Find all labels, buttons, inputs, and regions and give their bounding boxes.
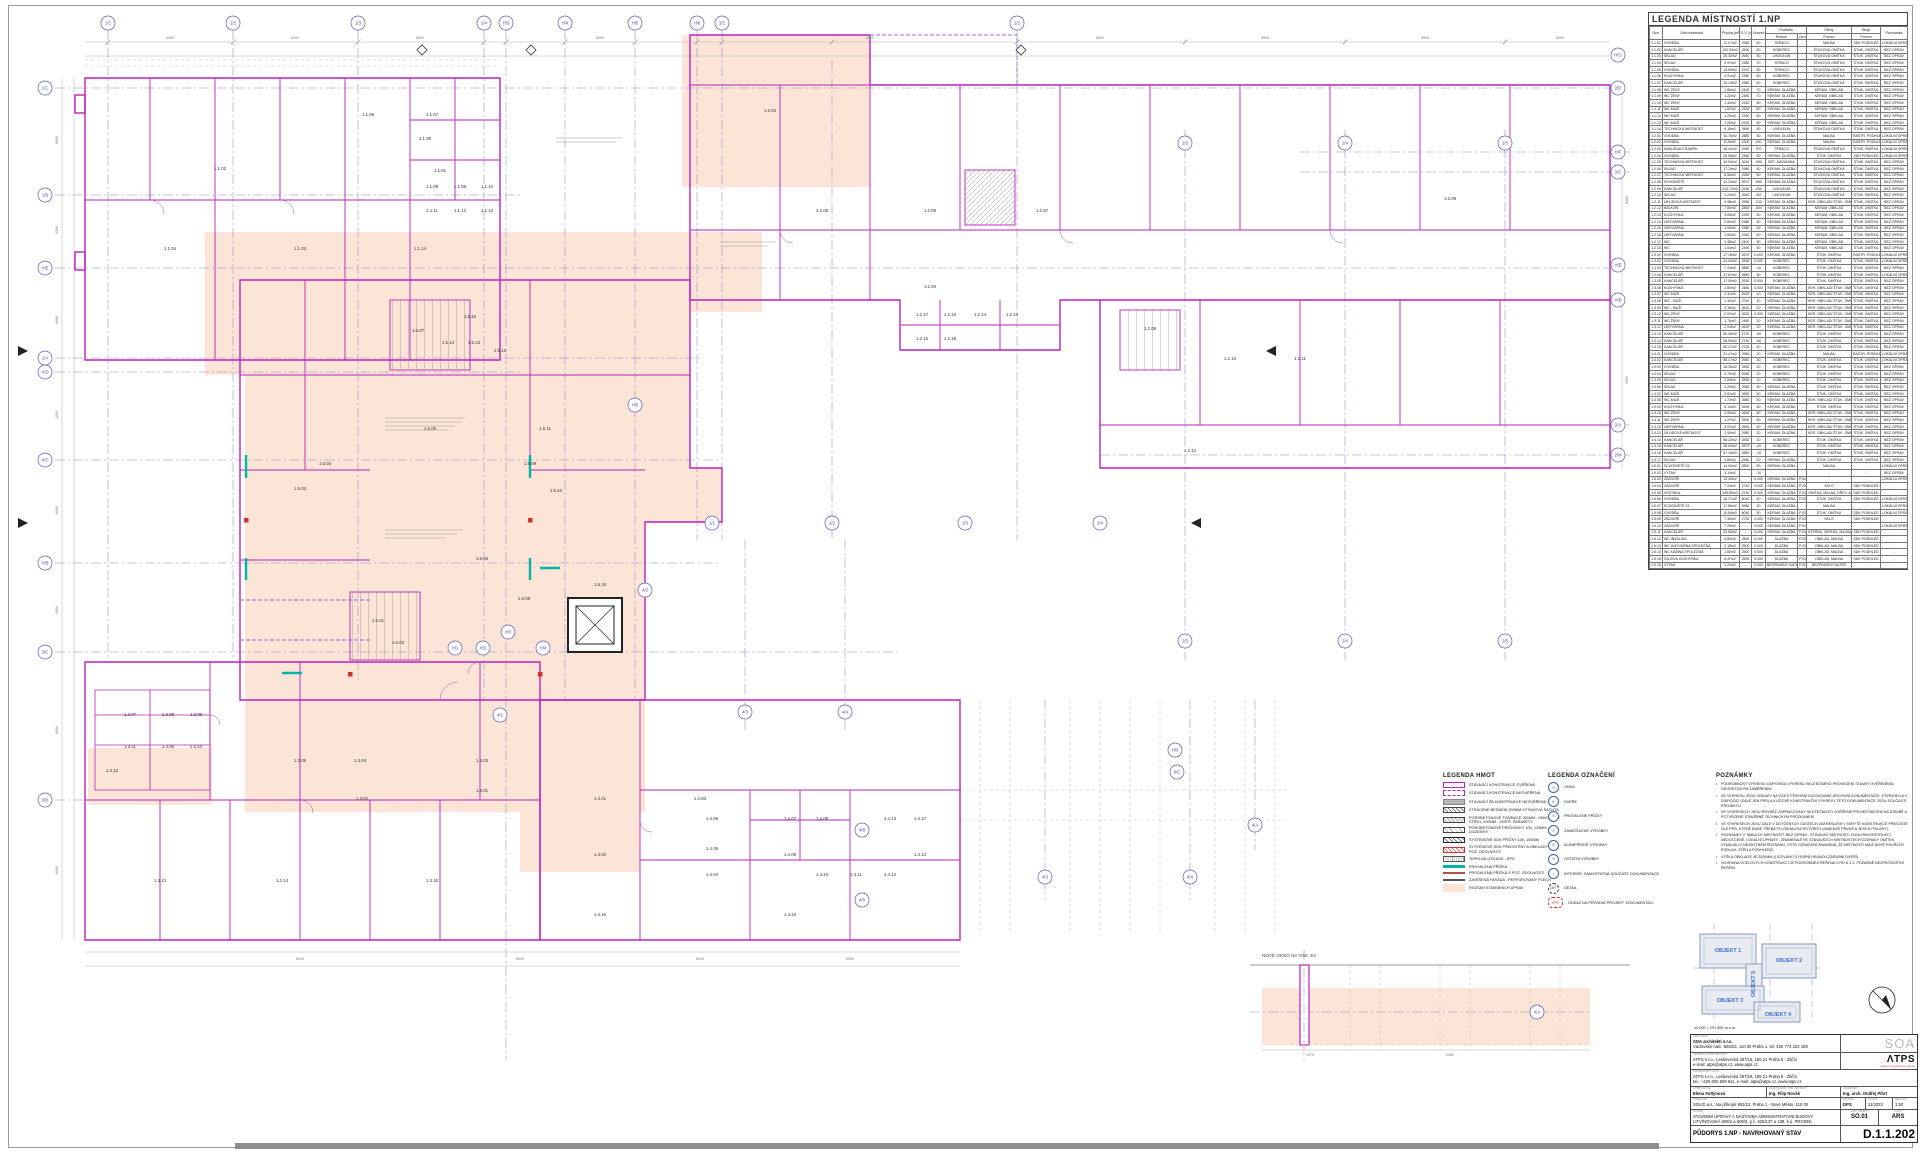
drawing-number: D.1.1.202: [1843, 1127, 1915, 1141]
svg-text:1.1.06: 1.1.06: [362, 112, 375, 117]
svg-text:1/A: 1/A: [42, 356, 48, 361]
legend-item: STÁVAJÍCÍ KONSTRUKCE OVĚŘENÁ: [1443, 782, 1561, 788]
title-block: ARCHITEKT SOA architekti s.r.o. Václavsk…: [1690, 1034, 1918, 1143]
table-row: 1.1.06KUCHYŇKA4.91m2238060KOBEREC-ŠTUKOV…: [1650, 73, 1908, 80]
svg-text:1.4.17: 1.4.17: [914, 816, 927, 821]
svg-text:6000: 6000: [1096, 36, 1104, 40]
svg-text:1.5.05: 1.5.05: [424, 426, 437, 431]
atps-logo: ΛTPSatelier projektovani staveb: [1843, 1054, 1915, 1068]
table-row: 1.1.05CHODBA13.59m2237060TERACO-ŠTUKOVÁ …: [1650, 66, 1908, 73]
legend-item: ZTRACENÉ BEDNĚNÍ 200MM VÝTAHOVÁ ŠACHTA: [1443, 807, 1561, 813]
svg-text:1.4.15: 1.4.15: [784, 912, 797, 917]
svg-text:1.5.01: 1.5.01: [372, 618, 385, 623]
svg-text:4500: 4500: [1625, 376, 1629, 384]
table-row: 1.3.07WC MUŽI4.31m2262010KERAM. DLAŽBA-K…: [1650, 291, 1908, 298]
svg-text:1.4.05: 1.4.05: [706, 846, 719, 851]
svg-text:6000: 6000: [166, 36, 174, 40]
svg-text:4/A: 4/A: [1534, 1010, 1540, 1015]
svg-text:1.2.18: 1.2.18: [944, 336, 957, 341]
table-row: 1.3.12UMÝVÁRNA2.04m2262020KERAM. DLAŽBA-…: [1650, 324, 1908, 331]
svg-text:1.4.03: 1.4.03: [694, 796, 707, 801]
drawing-title: PŮDORYS 1.NP - NAVRHOVANÝ STAV: [1693, 1131, 1801, 1137]
svg-text:1.2.11: 1.2.11: [1294, 356, 1306, 361]
table-row: 1.4.11WC ŽENY1.27m2250050KERAM. DLAŽBA-K…: [1650, 417, 1908, 424]
table-row: 1.5.09ZÁDVEŘÍ7.35m227300.000KERAM. DLAŽB…: [1650, 516, 1908, 523]
table-row: 1.3.03TECHNICKÁ MÍSTNOST7.24m22880-10KOB…: [1650, 265, 1908, 272]
table-row: 1.5.03ZÁDVEŘÍ13.49m2-0.000KERAM. DLAŽBAP…: [1650, 476, 1908, 483]
note-item: VE VÝKRESU JSOU ODKAZY NA ČÁSTI PŮVODNÍ …: [1716, 794, 1912, 809]
note-item: POZNÁMKY V TABULCE MÍSTNOSTÍ: BEZ OPRAV …: [1716, 833, 1912, 853]
svg-text:1.4.10: 1.4.10: [816, 872, 829, 877]
table-row: 1.5.01SCHODIŠTĚ S214.93m2280090KERAM. DL…: [1650, 463, 1908, 470]
svg-text:1.2.07: 1.2.07: [1036, 208, 1049, 213]
svg-text:8150: 8150: [1625, 196, 1629, 204]
svg-text:OBJEKT 3: OBJEKT 3: [1717, 998, 1743, 1004]
svg-text:6000: 6000: [55, 726, 59, 734]
table-row: 1.2.08SCHODIŠTĚ12.20m26570-550KERAM. DLA…: [1650, 179, 1908, 186]
svg-text:H/D: H/D: [41, 370, 48, 375]
north-arrow-icon: [1869, 987, 1895, 1013]
svg-text:1.1.04: 1.1.04: [164, 246, 177, 251]
architect2-name: Ing. arch. Ondřej Píhrt: [1843, 1091, 1887, 1096]
legend-item: ROZSAH STAVEBNÍCH ÚPRAV: [1443, 884, 1561, 892]
table-row: 1.1.01CHODBA11.17m2298050TERACO-MALBASDK…: [1650, 40, 1908, 47]
room-table-header: Ozn. Účel místnosti Plocha [m²] S.V. [mm…: [1650, 27, 1908, 40]
table-row: 1.5.10ZÁDVEŘÍ7.29m2-0.000KERAM. DLAŽBAP.…: [1650, 522, 1908, 529]
svg-text:1.2.08: 1.2.08: [1144, 326, 1157, 331]
svg-text:1.1.14: 1.1.14: [414, 246, 427, 251]
svg-text:1.1.07: 1.1.07: [426, 112, 439, 117]
legend-swatch: [1443, 827, 1465, 833]
table-row: 1.4.12UMÝVÁRNA3.07m2265050KERAM. DLAŽBA-…: [1650, 423, 1908, 430]
table-row: 1.2.09KANCELÁŘ214.72m22930-200LINOLEUM-Š…: [1650, 185, 1908, 192]
svg-text:1.1.13: 1.1.13: [481, 208, 494, 213]
table-row: 1.2.01CHODBA14.76m2288050KERAM. DLAŽBA-M…: [1650, 132, 1908, 139]
svg-text:2/2: 2/2: [1014, 21, 1020, 26]
svg-text:1.2.09: 1.2.09: [1444, 196, 1457, 201]
svg-text:1.5.07: 1.5.07: [412, 328, 425, 333]
architect-name: SOA architekti s.r.o.: [1693, 1039, 1733, 1044]
svg-text:1.4.07: 1.4.07: [784, 816, 797, 821]
table-row: 1.4.04SKLAD4.70m2298030KOBEREC-ŠTUK. OMÍ…: [1650, 370, 1908, 377]
legend-swatch: [1443, 865, 1465, 868]
doc-part: ARS: [1892, 1114, 1905, 1120]
drawing-sheet: { "sheet": { "drawing_title": "PŮDORYS 1…: [0, 0, 1920, 1152]
notes-title: POZNÁMKY: [1716, 773, 1912, 779]
legend-symbol-item: VOSTATNÍ VÝROBKY: [1548, 854, 1660, 865]
table-row: 1.5.13WC UMÝVÁRNA SPOLEČNÁ2.15m225000.00…: [1650, 542, 1908, 549]
table-row: 1.5.02VÝTAH3.10m2--10----BEZ OPRAV: [1650, 470, 1908, 477]
floor-plan-drawing: 1/11/21/31/4H/3H/4H/5H/62/12/22/32/42/52…: [0, 0, 1655, 1152]
svg-text:2/1: 2/1: [709, 521, 715, 526]
table-row: 1.4.01CHODBA21.47m2298020KERAM. DLAŽBA-M…: [1650, 351, 1908, 358]
table-row: 1.4.13ÚKLIDOVÁ MÍSTNOST2.90m2298030KERAM…: [1650, 430, 1908, 437]
svg-text:1.2.06: 1.2.06: [924, 208, 937, 213]
svg-text:1.5.08: 1.5.08: [518, 596, 531, 601]
svg-text:H/E: H/E: [42, 266, 49, 271]
elevator-shaft: [568, 598, 622, 652]
symbol-circle-icon: O: [1548, 782, 1559, 793]
svg-text:1.3.12: 1.3.12: [106, 768, 119, 773]
svg-text:2/D: 2/D: [1615, 86, 1622, 91]
table-row: 1.5.16VÝTAH4.20m2-0.000BEZPRAŠNÝ NÁTĚRP.…: [1650, 562, 1908, 569]
legend-item: SYSTÉMOVÉ SDK PŘÍČKY 100, 150MM: [1443, 837, 1561, 843]
svg-text:1.3.09: 1.3.09: [190, 712, 203, 717]
svg-text:1.4.11: 1.4.11: [850, 872, 862, 877]
table-row: 1.3.08WC - MUŽI1.32m2274010KERAM. DLAŽBA…: [1650, 298, 1908, 305]
stage-value: DPS: [1843, 1102, 1852, 1107]
svg-text:2460: 2460: [1446, 1053, 1454, 1057]
table-row: 1.4.06SKLAD3.29m2298030KERAM. DLAŽBA-ŠTU…: [1650, 384, 1908, 391]
svg-text:1.3.08: 1.3.08: [162, 712, 175, 717]
table-row: 1.1.03SKLAD25.32m2294050LINOLEUM-ŠTUKOVÁ…: [1650, 53, 1908, 60]
symbol-circle-icon: K: [1548, 840, 1559, 851]
table-row: 1.5.07SCHODIŠTĚ S117.66m2596020KERAM. DL…: [1650, 503, 1908, 510]
svg-text:H/2: H/2: [480, 646, 487, 651]
table-row: 1.1.08WC ŽENY1.86m2240070KERAM. DLAŽBA-K…: [1650, 86, 1908, 93]
svg-text:6000: 6000: [696, 957, 704, 961]
responsible-designer: Ing. Filip Novák: [1769, 1091, 1800, 1096]
table-row: 1.4.17SKLAD1.80m2298020KERAM. DLAŽBA-ŠTU…: [1650, 456, 1908, 463]
table-row: 1.3.05KANCELÁŘ17.00m225300.000KOBEREC-ŠT…: [1650, 278, 1908, 285]
table-row: 1.4.15KANCELÁŘ28.04m22870-20KOBEREC-ŠTUK…: [1650, 443, 1908, 450]
renovation-scope-areas: [88, 35, 1590, 1045]
svg-text:1.1.11: 1.1.11: [426, 208, 438, 213]
svg-text:4/3: 4/3: [742, 710, 748, 715]
legend-item: POROBETONOVÉ TVÁRNICE 250MM - OBVODOVÉ S…: [1443, 816, 1561, 824]
table-row: 1.5.11KANCELÁŘ24.55m2-0.000KERAM. DLAŽBA…: [1650, 529, 1908, 536]
svg-text:2/4: 2/4: [1097, 521, 1103, 526]
svg-text:1.3.07: 1.3.07: [124, 712, 137, 717]
table-row: 1.2.05TECHNICKÁ MÍSTNOST19.00m23240-590B…: [1650, 159, 1908, 166]
svg-text:1.5.04: 1.5.04: [319, 461, 332, 466]
table-row: 1.1.14TECHNICKÁ MÍSTNOST6.18m2289050LINO…: [1650, 126, 1908, 133]
table-row: 1.2.15UMÝVÁRNA1.53m2238050KERAM. DLAŽBA-…: [1650, 225, 1908, 232]
svg-text:H/B: H/B: [42, 561, 49, 566]
table-row: 1.2.18WC1.04m2239060KERAM. DLAŽBA-KERAM.…: [1650, 245, 1908, 252]
architect-address: Václavské nám. 828/23, 110 00 Praha 1, t…: [1693, 1044, 1808, 1049]
svg-text:1/3: 1/3: [355, 21, 361, 26]
investor: SOLID a.s., Na příkopě 853/12, Praha 1 -…: [1693, 1102, 1808, 1107]
legend-item: STÁVAJÍCÍ KONSTRUKCE NEOVĚŘENÁ: [1443, 790, 1561, 796]
svg-text:1.3.03: 1.3.03: [476, 758, 489, 763]
svg-text:1.2.05: 1.2.05: [816, 208, 829, 213]
part-designer: ATPS s.r.o., Leskovecká 287/16, 155 21 P…: [1693, 1074, 1797, 1079]
table-row: 1.2.14UMÝVÁRNA2.80m2238050KERAM. DLAŽBA-…: [1650, 218, 1908, 225]
svg-text:1.2.17: 1.2.17: [916, 312, 929, 317]
svg-text:4/2: 4/2: [642, 588, 648, 593]
svg-text:1.5.14: 1.5.14: [442, 340, 455, 345]
table-row: 1.3.15KANCELÁŘ50.27m2270010KOBEREC-ŠTUK.…: [1650, 344, 1908, 351]
svg-text:1.3.10: 1.3.10: [190, 744, 203, 749]
svg-text:H/F: H/F: [1615, 150, 1622, 155]
svg-text:1.5.02: 1.5.02: [392, 640, 405, 645]
svg-text:1/4: 1/4: [481, 21, 487, 26]
svg-text:6000: 6000: [1261, 36, 1269, 40]
legend-swatch: [1443, 807, 1465, 813]
svg-text:1.4.14: 1.4.14: [914, 852, 927, 857]
svg-text:4/4: 4/4: [842, 710, 848, 715]
svg-text:1.5.13: 1.5.13: [468, 340, 481, 345]
legend-swatch: [1443, 817, 1465, 823]
svg-text:4200: 4200: [55, 411, 59, 419]
svg-text:1/1: 1/1: [105, 21, 111, 26]
svg-text:1.4.08: 1.4.08: [816, 816, 829, 821]
table-row: 1.3.11WC ŽENY1.76m2248020KERAM. DLAŽBA-K…: [1650, 318, 1908, 325]
svg-text:1.4.13: 1.4.13: [884, 816, 897, 821]
legend-symbol-item: OOKNA: [1548, 782, 1660, 793]
svg-text:3/B: 3/B: [42, 798, 48, 803]
symbol-circle-icon: Z: [1548, 825, 1559, 836]
table-row: 1.2.07TECHNICKÁ MÍSTNOST8.56m2298060KERA…: [1650, 172, 1908, 179]
svg-text:2/2: 2/2: [829, 521, 835, 526]
svg-text:6000: 6000: [55, 506, 59, 514]
svg-text:4/B: 4/B: [859, 828, 865, 833]
symbol-circle-icon: PPD: [1548, 897, 1563, 908]
legend-hmot-title: LEGENDA HMOT: [1443, 773, 1561, 779]
legend-symbol-item: PPDODKAZ NA PŮVODNÍ PROJEKT. DOKUMENTACI: [1548, 897, 1660, 908]
svg-text:H/3: H/3: [503, 21, 510, 26]
svg-text:H/4: H/4: [562, 21, 569, 26]
svg-text:OBJEKT 4: OBJEKT 4: [1765, 1012, 1791, 1018]
svg-text:1.1.05: 1.1.05: [419, 136, 432, 141]
svg-text:4/4: 4/4: [1187, 875, 1193, 880]
table-row: 1.1.07KANCELÁŘ15.19m2238050KOBEREC-ŠTUKO…: [1650, 80, 1908, 87]
level-datum-note: ±0.000 = 297.850 m.n.m.: [1694, 1026, 1736, 1030]
svg-text:H/G: H/G: [1614, 53, 1621, 58]
svg-text:OBJEKT 1: OBJEKT 1: [1715, 948, 1741, 954]
legend-symbol-item: ZZÁMEČNICKÉ VÝROBKY: [1548, 825, 1660, 836]
table-row: 1.5.12WC INVALIDA4.80m225000.000DLAŽBAP.…: [1650, 536, 1908, 543]
svg-text:2/5: 2/5: [1502, 639, 1508, 644]
drawn-by: Elena Foltýnová: [1693, 1091, 1725, 1096]
svg-text:1.5.09: 1.5.09: [524, 461, 537, 466]
table-row: 1.5.06CHODBA18.77m2604010KERAM. DLAŽBAP.…: [1650, 496, 1908, 503]
table-row: 1.2.17WC1.48m2240050KERAM. DLAŽBA-KERAM.…: [1650, 238, 1908, 245]
svg-text:2/A: 2/A: [1615, 423, 1621, 428]
svg-text:1.5.03: 1.5.03: [294, 486, 307, 491]
table-row: 1.3.01CHODBA17.18m226700.000KERAM. DLAŽB…: [1650, 251, 1908, 258]
table-row: 1.5.15ČAJOVÁ KUCHYŇKA5.47m225000.000DLAŽ…: [1650, 555, 1908, 562]
svg-text:1/B: 1/B: [42, 193, 48, 198]
svg-text:1.1.01: 1.1.01: [434, 168, 447, 173]
svg-text:6000: 6000: [596, 36, 604, 40]
svg-text:4/9: 4/9: [859, 898, 865, 903]
table-row: 1.1.02KANCELÁŘ120.53m2253050KOBEREC-ŠTUK…: [1650, 47, 1908, 54]
svg-text:1.3.11: 1.3.11: [124, 744, 136, 749]
svg-text:1.4.16: 1.4.16: [594, 912, 607, 917]
table-row: 1.2.03NAKLÁDACÍ RAMPA16.42m22940370TERAC…: [1650, 146, 1908, 153]
svg-text:4/1: 4/1: [497, 713, 503, 718]
general-designer: ATPS s.r.o., Leskovecká 287/16, 155 21 P…: [1693, 1057, 1797, 1062]
svg-text:6000: 6000: [55, 316, 59, 324]
svg-text:H/E: H/E: [1615, 263, 1622, 268]
legend-swatch: [1443, 884, 1465, 892]
svg-text:1.3.06: 1.3.06: [162, 744, 175, 749]
table-row: 1.3.09WC - MUŽI1.18m2261020KERAM. DLAŽBA…: [1650, 304, 1908, 311]
legend-swatch: [1443, 799, 1465, 805]
svg-text:1.2.03: 1.2.03: [764, 108, 777, 113]
table-row: 1.1.09WC ŽENY1.22m2238070KERAM. DLAŽBA-K…: [1650, 93, 1908, 100]
svg-text:2/3: 2/3: [1182, 141, 1188, 146]
svg-text:H/3: H/3: [1172, 748, 1179, 753]
svg-text:NOVÉ OKNO NA OSE 4/A: NOVÉ OKNO NA OSE 4/A: [1262, 952, 1317, 958]
part-designer-contact: tel.: +420 602 509 811, e-mail: atps@atp…: [1693, 1079, 1802, 1084]
svg-text:1.3.05: 1.3.05: [294, 758, 307, 763]
key-plan: OBJEKT 1OBJEKT 2OBJEKT 5OBJEKT 3OBJEKT 4…: [1692, 922, 1918, 1030]
svg-text:6000: 6000: [291, 36, 299, 40]
svg-text:1.4.09: 1.4.09: [784, 852, 797, 857]
svg-text:2/M: 2/M: [1615, 453, 1622, 458]
svg-text:H/3: H/3: [505, 630, 512, 635]
table-row: 1.2.11ÚKLIDOVÁ MÍSTNOST0.98m22950-210KER…: [1650, 199, 1908, 206]
legend-item: PROSKLENÁ PŘÍČKA: [1443, 865, 1561, 869]
svg-text:3/C: 3/C: [42, 650, 49, 655]
room-legend-title: LEGENDA MÍSTNOSTÍ 1.NP: [1649, 13, 1907, 26]
table-row: 1.2.13KUCHYŇKA3.08m2239050KERAM. DLAŽBA-…: [1650, 212, 1908, 219]
svg-text:6000: 6000: [296, 957, 304, 961]
table-row: 1.4.14KANCELÁŘ58.22m2283010KOBEREC-ŠTUK.…: [1650, 437, 1908, 444]
symbol-circle-icon: I: [1548, 868, 1559, 879]
svg-text:6000: 6000: [416, 36, 424, 40]
svg-text:6000: 6000: [846, 957, 854, 961]
svg-text:1.5.15: 1.5.15: [464, 314, 477, 319]
table-row: 1.2.16UMÝVÁRNA1.50m2234050KERAM. DLAŽBA-…: [1650, 232, 1908, 239]
svg-text:1.4.04: 1.4.04: [706, 872, 719, 877]
table-row: 1.5.05VESTIBUL149.85m227400.000KERAM. DL…: [1650, 489, 1908, 496]
legend-oznaceni-title: LEGENDA OZNAČENÍ: [1548, 773, 1660, 779]
svg-text:1.1.10: 1.1.10: [481, 184, 494, 189]
svg-text:1.5.10: 1.5.10: [550, 488, 563, 493]
table-row: 1.4.05SKLAD2.69m2283010KOBEREC-ŠTUK. OMÍ…: [1650, 377, 1908, 384]
legend-item: SYSTÉMOVÉ SDK PŘEDSTĚNY A OBKLADY S POŽ.…: [1443, 845, 1561, 853]
svg-text:6000: 6000: [516, 957, 524, 961]
svg-text:2/4: 2/4: [1342, 639, 1348, 644]
legend-swatch: [1443, 879, 1465, 881]
svg-text:1.2.04: 1.2.04: [924, 284, 937, 289]
svg-text:2/4: 2/4: [1342, 141, 1348, 146]
date-value: 11/2023: [1868, 1102, 1883, 1107]
table-row: 1.1.04SKLAD5.97m2238070TERACO-ŠTUKOVÁ OM…: [1650, 60, 1908, 67]
svg-text:1.5.11: 1.5.11: [539, 426, 551, 431]
svg-text:6000: 6000: [1421, 36, 1429, 40]
svg-text:2/C: 2/C: [1615, 170, 1622, 175]
table-row: 1.1.12WC MUŽI1.29m2233060KERAM. DLAŽBA-K…: [1650, 113, 1908, 120]
table-row: 1.3.10WC ŽENY2.97m226200.000KERAM. DLAŽB…: [1650, 311, 1908, 318]
svg-text:1.3.01: 1.3.01: [476, 788, 489, 793]
svg-text:2/3: 2/3: [962, 521, 968, 526]
table-row: 1.4.08WC MUŽI1.72m2258050KERAM. DLAŽBA-K…: [1650, 397, 1908, 404]
table-row: 1.1.13WC MUŽI1.25m2233060KERAM. DLAŽBA-K…: [1650, 119, 1908, 126]
general-designer-contact: e-mail: atps@atps.cz, www.atps.cz: [1693, 1062, 1758, 1067]
project-name: STAVEBNÍ ÚPRAVY A NÁSTAVBA ADMINISTRATIV…: [1693, 1114, 1813, 1124]
svg-text:OBJEKT 5: OBJEKT 5: [1751, 971, 1757, 997]
svg-text:1.2.16: 1.2.16: [916, 336, 929, 341]
legend-item: POROBETONOVÉ PŘÍČKOVKY 100, 125MM - DOZD…: [1443, 826, 1561, 834]
svg-text:1.2.14: 1.2.14: [974, 312, 987, 317]
legend-swatch: [1443, 856, 1465, 862]
table-row: 1.3.02CHODBA24.04m225300.000KOBEREC-ŠTUK…: [1650, 258, 1908, 265]
svg-text:H/4: H/4: [540, 646, 547, 651]
note-item: PODROBNOST VÝKRESU ODPOVÍDÁ VÝKRESU SKUT…: [1716, 782, 1912, 792]
svg-text:1.5.12: 1.5.12: [494, 348, 507, 353]
table-row: 1.4.10WC ŽENY3.90m2265050KERAM. DLAŽBA-K…: [1650, 410, 1908, 417]
svg-text:6/C: 6/C: [1174, 770, 1181, 775]
legend-item: ZAVĚŠENÁ FASÁDA - PERFOROVANÝ PLECH: [1443, 878, 1561, 882]
table-row: 1.1.11WC MUŽI1.87m2233060KERAM. DLAŽBA-K…: [1650, 106, 1908, 113]
table-row: 1.3.13KANCELÁŘ50.36m22720-50KOBEREC-ŠTUK…: [1650, 331, 1908, 338]
legend-symbol-item: SPROSKLENÉ PŘÍČKY: [1548, 811, 1660, 822]
svg-text:6000: 6000: [55, 866, 59, 874]
svg-text:1.5.06: 1.5.06: [476, 556, 489, 561]
svg-text:3300: 3300: [55, 226, 59, 234]
svg-text:H/5: H/5: [632, 403, 639, 408]
table-row: 1.4.02KANCELÁŘ58.17m2298030KOBEREC-ŠTUK.…: [1650, 357, 1908, 364]
legend-item: PROSKLENÁ PŘÍČKA S POŽ. ODOLNOSTÍ: [1443, 871, 1561, 875]
table-row: 1.1.10WC ŽENY1.40m2234080KERAM. DLAŽBA-K…: [1650, 99, 1908, 106]
svg-text:H/5: H/5: [632, 21, 639, 26]
svg-text:H/6: H/6: [694, 21, 701, 26]
svg-text:1.5.16: 1.5.16: [594, 582, 607, 587]
svg-text:1.1.08: 1.1.08: [426, 184, 439, 189]
legend-hmot: LEGENDA HMOT STÁVAJÍCÍ KONSTRUKCE OVĚŘEN…: [1443, 773, 1561, 895]
legend-symbol-item: KKLEMPÍŘSKÉ VÝROBKY: [1548, 840, 1660, 851]
note-item: OCHRANA OCELOVÝCH KONSTRUKCÍ JE PODROBNĚ…: [1716, 861, 1912, 871]
svg-text:1/C: 1/C: [42, 86, 49, 91]
svg-text:1.2.15: 1.2.15: [944, 312, 957, 317]
note-item: VE VÝKRESECH JSOU DÁLE V DOTČENÝCH ČÁSTE…: [1716, 822, 1912, 832]
symbol-circle-icon: S: [1548, 811, 1559, 822]
legend-symbol-item: IINTERIÉR, SAMOSTATNÁ SOUČÁST DOKUMENTAC…: [1548, 868, 1660, 879]
svg-text:1/2: 1/2: [230, 21, 236, 26]
svg-text:H/C: H/C: [41, 458, 48, 463]
plan-annotations: NOVÉ OKNO NA OSE 4/A: [1262, 952, 1317, 958]
legend-swatch: [1443, 837, 1465, 843]
svg-text:2/3: 2/3: [1182, 639, 1188, 644]
table-row: 1.3.04KANCELÁŘ37.61m2288050KOBEREC-ŠTUK.…: [1650, 271, 1908, 278]
symbol-circle-icon: DET: [1548, 883, 1559, 894]
note-item: VE VÝKRESECH JSOU ROVNĚŽ ZAPRACOVÁNY SKU…: [1716, 810, 1912, 820]
svg-text:1.2.10: 1.2.10: [1224, 356, 1237, 361]
svg-text:2/5: 2/5: [1502, 141, 1508, 146]
svg-text:H/B: H/B: [1615, 298, 1622, 303]
table-row: 1.4.03CHODBA16.35m2265030KOBEREC-ŠTUK. O…: [1650, 364, 1908, 371]
svg-text:4/A: 4/A: [1252, 823, 1258, 828]
table-row: 1.2.06SKLAD17.76m2298050KERAM. DLAŽBA-ŠT…: [1650, 166, 1908, 173]
scale-value: 1:50: [1895, 1102, 1903, 1107]
table-row: 1.4.07WC MUŽI2.81m2265050KERAM. DLAŽBA-Š…: [1650, 390, 1908, 397]
building-object: SO.01: [1851, 1114, 1868, 1120]
svg-text:1.1.12: 1.1.12: [454, 208, 467, 213]
symbol-circle-icon: D: [1548, 796, 1559, 807]
soa-logo: SOA: [1885, 1036, 1915, 1051]
svg-text:1.3.04: 1.3.04: [354, 758, 367, 763]
svg-text:1.1.02: 1.1.02: [214, 166, 227, 171]
table-row: 1.4.09KUCHYŇKA5.14m2269050KERAM. DLAŽBA-…: [1650, 403, 1908, 410]
svg-text:OBJEKT 2: OBJEKT 2: [1776, 958, 1802, 964]
svg-text:1.1.03: 1.1.03: [294, 246, 307, 251]
legend-swatch: [1443, 872, 1465, 875]
svg-text:6000: 6000: [1556, 36, 1564, 40]
svg-text:4/3: 4/3: [1042, 875, 1048, 880]
table-row: 1.2.12BALKÓN7.80m22860-400KERAM. DLAŽBA-…: [1650, 205, 1908, 212]
legend-item: STÁVAJÍCÍ ŽB KONSTRUKCE NEOVĚŘENÁ: [1443, 799, 1561, 805]
svg-text:4500: 4500: [55, 606, 59, 614]
svg-text:6000: 6000: [866, 36, 874, 40]
room-legend-table: LEGENDA MÍSTNOSTÍ 1.NP Ozn. Účel místnos…: [1648, 12, 1908, 570]
table-row: 1.5.08CHODBA10.59m2604050KERAM. DLAŽBAP.…: [1650, 509, 1908, 516]
svg-text:1.4.02: 1.4.02: [594, 852, 607, 857]
